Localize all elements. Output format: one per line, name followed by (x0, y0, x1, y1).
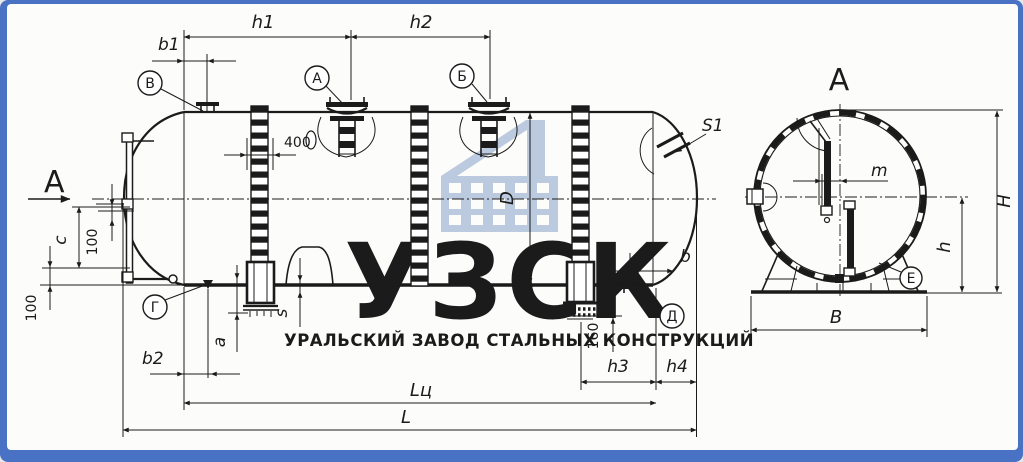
dim-100-top-label: 100 (85, 229, 101, 256)
dim-400-label: 400 (284, 135, 311, 151)
section-cut-letter: А (44, 165, 65, 200)
callout-e-label: Е (907, 271, 916, 287)
dim-h3-label: h3 (607, 357, 629, 377)
bottom-fitting-g (203, 280, 213, 378)
dim-s-label: s (272, 308, 292, 317)
section-cut-mark: А (28, 165, 70, 200)
dim-m-label: m (871, 161, 888, 181)
dim-h4-label: h4 (666, 357, 688, 377)
factory-icon (441, 120, 558, 232)
drawing-canvas: УЗСК УРАЛЬСКИЙ ЗАВОД СТАЛЬНЫХ КОНСТРУКЦИ… (0, 0, 1023, 462)
ring-band-2 (411, 106, 428, 286)
dim-h-label: h (934, 241, 955, 252)
manhole-a (318, 97, 375, 157)
watermark-tagline-text: УРАЛЬСКИЙ ЗАВОД СТАЛЬНЫХ КОНСТРУКЦИЙ (284, 331, 754, 350)
dim-b1-label: b1 (158, 35, 180, 55)
dim-b-cap-label: B (830, 307, 842, 328)
dim-100-bottom-label: 100 (24, 295, 40, 322)
dim-b2-label: b2 (142, 349, 164, 369)
callout-b-label: Б (457, 69, 467, 85)
dim-160-label: 160 (586, 323, 602, 350)
manhole-b (460, 97, 517, 157)
watermark-logo-text: УЗСК (344, 221, 675, 343)
tank-technical-drawing: УЗСК УРАЛЬСКИЙ ЗАВОД СТАЛЬНЫХ КОНСТРУКЦИ… (0, 0, 1023, 462)
ring-band-1 (251, 106, 268, 262)
dim-l-label: L (401, 407, 411, 428)
section-view-dimensions: m H h B (751, 110, 1015, 337)
section-view-title: А (829, 63, 850, 98)
dim-b-label: b (680, 247, 691, 267)
ring-band-3 (572, 106, 589, 262)
dim-h1-label: h1 (252, 12, 275, 33)
callout-a-label: А (312, 71, 322, 87)
internal-baffle (286, 247, 333, 285)
callout-g-label: Г (151, 300, 160, 316)
callout-d-label: Д (667, 309, 678, 325)
dim-lc-label: Lц (410, 380, 432, 401)
dim-d-label: D (497, 191, 518, 205)
dim-h2-label: h2 (410, 12, 433, 33)
dim-a-label: a (210, 337, 230, 347)
dim-s1-label: S1 (702, 116, 724, 136)
dim-c-label: c (51, 235, 71, 245)
level-gauge-column (96, 133, 177, 283)
callout-v-label: В (145, 76, 155, 92)
section-view: А (745, 63, 1015, 337)
dim-h-cap-label: H (994, 194, 1015, 208)
internal-dip-tubes (797, 117, 855, 283)
